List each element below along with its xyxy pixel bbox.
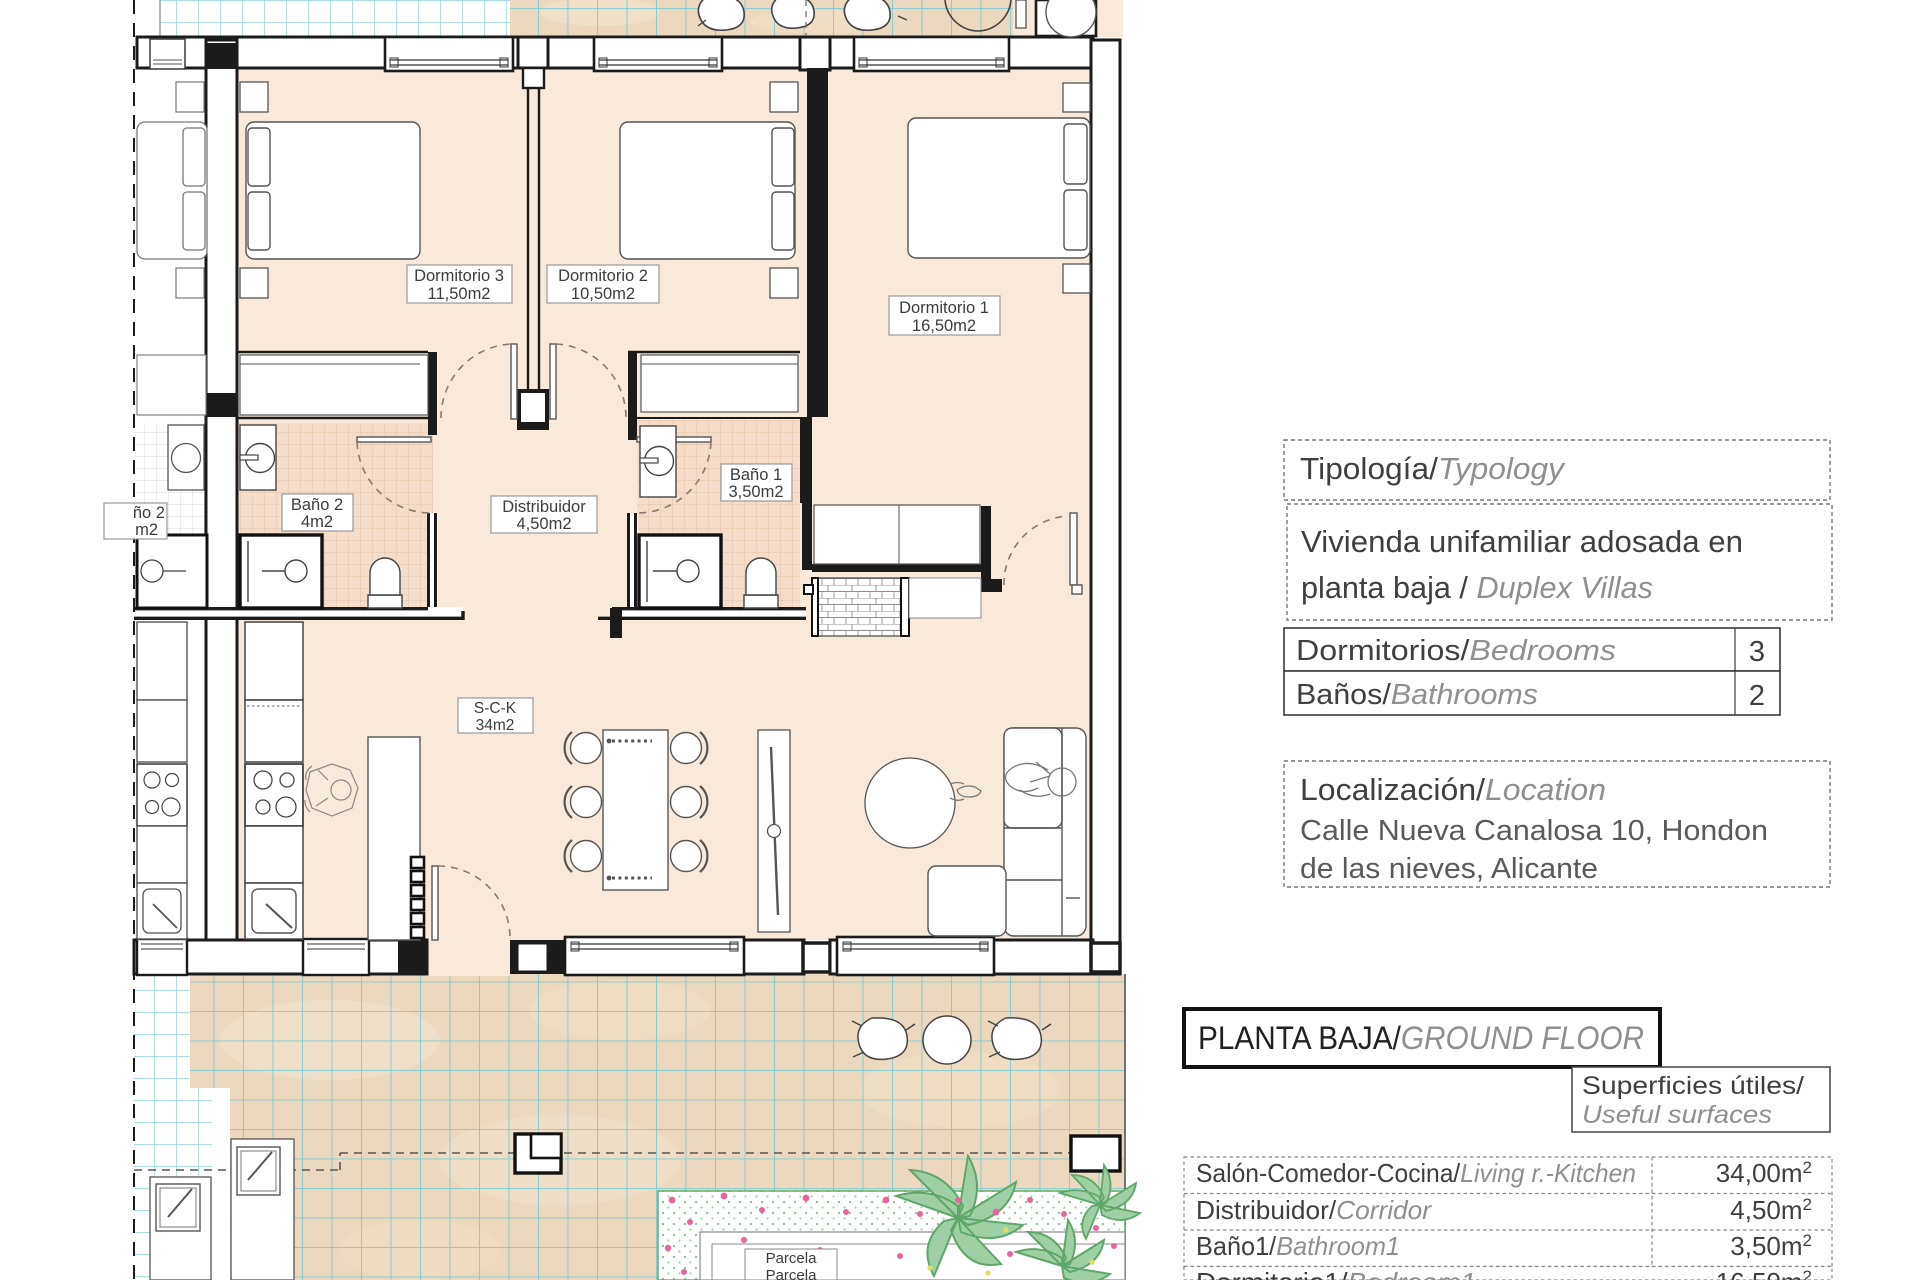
svg-text:Dormitorios/Bedrooms: Dormitorios/Bedrooms [1296, 635, 1616, 667]
svg-text:3,50m2: 3,50m2 [728, 483, 783, 501]
svg-text:de las nieves, Alicante: de las nieves, Alicante [1300, 853, 1598, 885]
svg-text:34,00m2: 34,00m2 [1716, 1158, 1812, 1188]
svg-text:3: 3 [1749, 636, 1765, 668]
svg-text:Vivienda unifamiliar adosada e: Vivienda unifamiliar adosada en [1301, 524, 1743, 559]
svg-text:S-C-K: S-C-K [474, 700, 517, 717]
svg-text:m2: m2 [135, 521, 158, 539]
svg-text:11,50m2: 11,50m2 [428, 285, 491, 303]
svg-text:Salón-Comedor-Cocina/Living r.: Salón-Comedor-Cocina/Living r.-Kitchen [1196, 1158, 1636, 1188]
svg-text:16,50m2: 16,50m2 [912, 317, 976, 335]
svg-text:Useful surfaces: Useful surfaces [1582, 1101, 1772, 1129]
svg-text:Baño1/Bathroom1: Baño1/Bathroom1 [1196, 1231, 1400, 1261]
svg-text:Dormitorio 1: Dormitorio 1 [899, 299, 989, 317]
svg-text:Parcela: Parcela [766, 1267, 818, 1280]
svg-text:3,50m2: 3,50m2 [1730, 1231, 1812, 1261]
svg-text:10,50m2: 10,50m2 [571, 285, 635, 303]
svg-text:Baño 2: Baño 2 [291, 496, 343, 514]
svg-text:Dormitorio 2: Dormitorio 2 [558, 267, 648, 285]
svg-text:Parcela: Parcela [766, 1250, 818, 1267]
svg-text:Localización/Location: Localización/Location [1300, 772, 1606, 807]
svg-text:16,50m2: 16,50m2 [1716, 1267, 1812, 1280]
svg-text:Dormitorio 3: Dormitorio 3 [414, 267, 504, 285]
svg-text:34m2: 34m2 [476, 717, 515, 734]
svg-text:Distribuidor/Corridor: Distribuidor/Corridor [1196, 1195, 1432, 1225]
svg-text:PLANTA BAJA/GROUND FLOOR: PLANTA BAJA/GROUND FLOOR [1198, 1020, 1644, 1056]
svg-text:Baños/Bathrooms: Baños/Bathrooms [1296, 679, 1538, 711]
svg-text:Distribuidor: Distribuidor [502, 498, 586, 516]
svg-text:4m2: 4m2 [301, 513, 333, 531]
svg-text:4,50m2: 4,50m2 [1730, 1195, 1812, 1225]
svg-text:Calle Nueva Canalosa 10, Hondo: Calle Nueva Canalosa 10, Hondon [1300, 815, 1768, 847]
svg-text:Dormitorio1/Bedroom1: Dormitorio1/Bedroom1 [1196, 1267, 1476, 1280]
svg-text:Superficies útiles/: Superficies útiles/ [1582, 1072, 1804, 1100]
svg-text:planta baja / Duplex Villas: planta baja / Duplex Villas [1301, 570, 1653, 605]
svg-text:Baño 1: Baño 1 [730, 466, 782, 484]
svg-text:ño 2: ño 2 [133, 504, 165, 522]
svg-text:Tipología/Typology: Tipología/Typology [1300, 451, 1567, 486]
svg-text:4,50m2: 4,50m2 [516, 515, 571, 533]
svg-text:2: 2 [1749, 680, 1765, 712]
